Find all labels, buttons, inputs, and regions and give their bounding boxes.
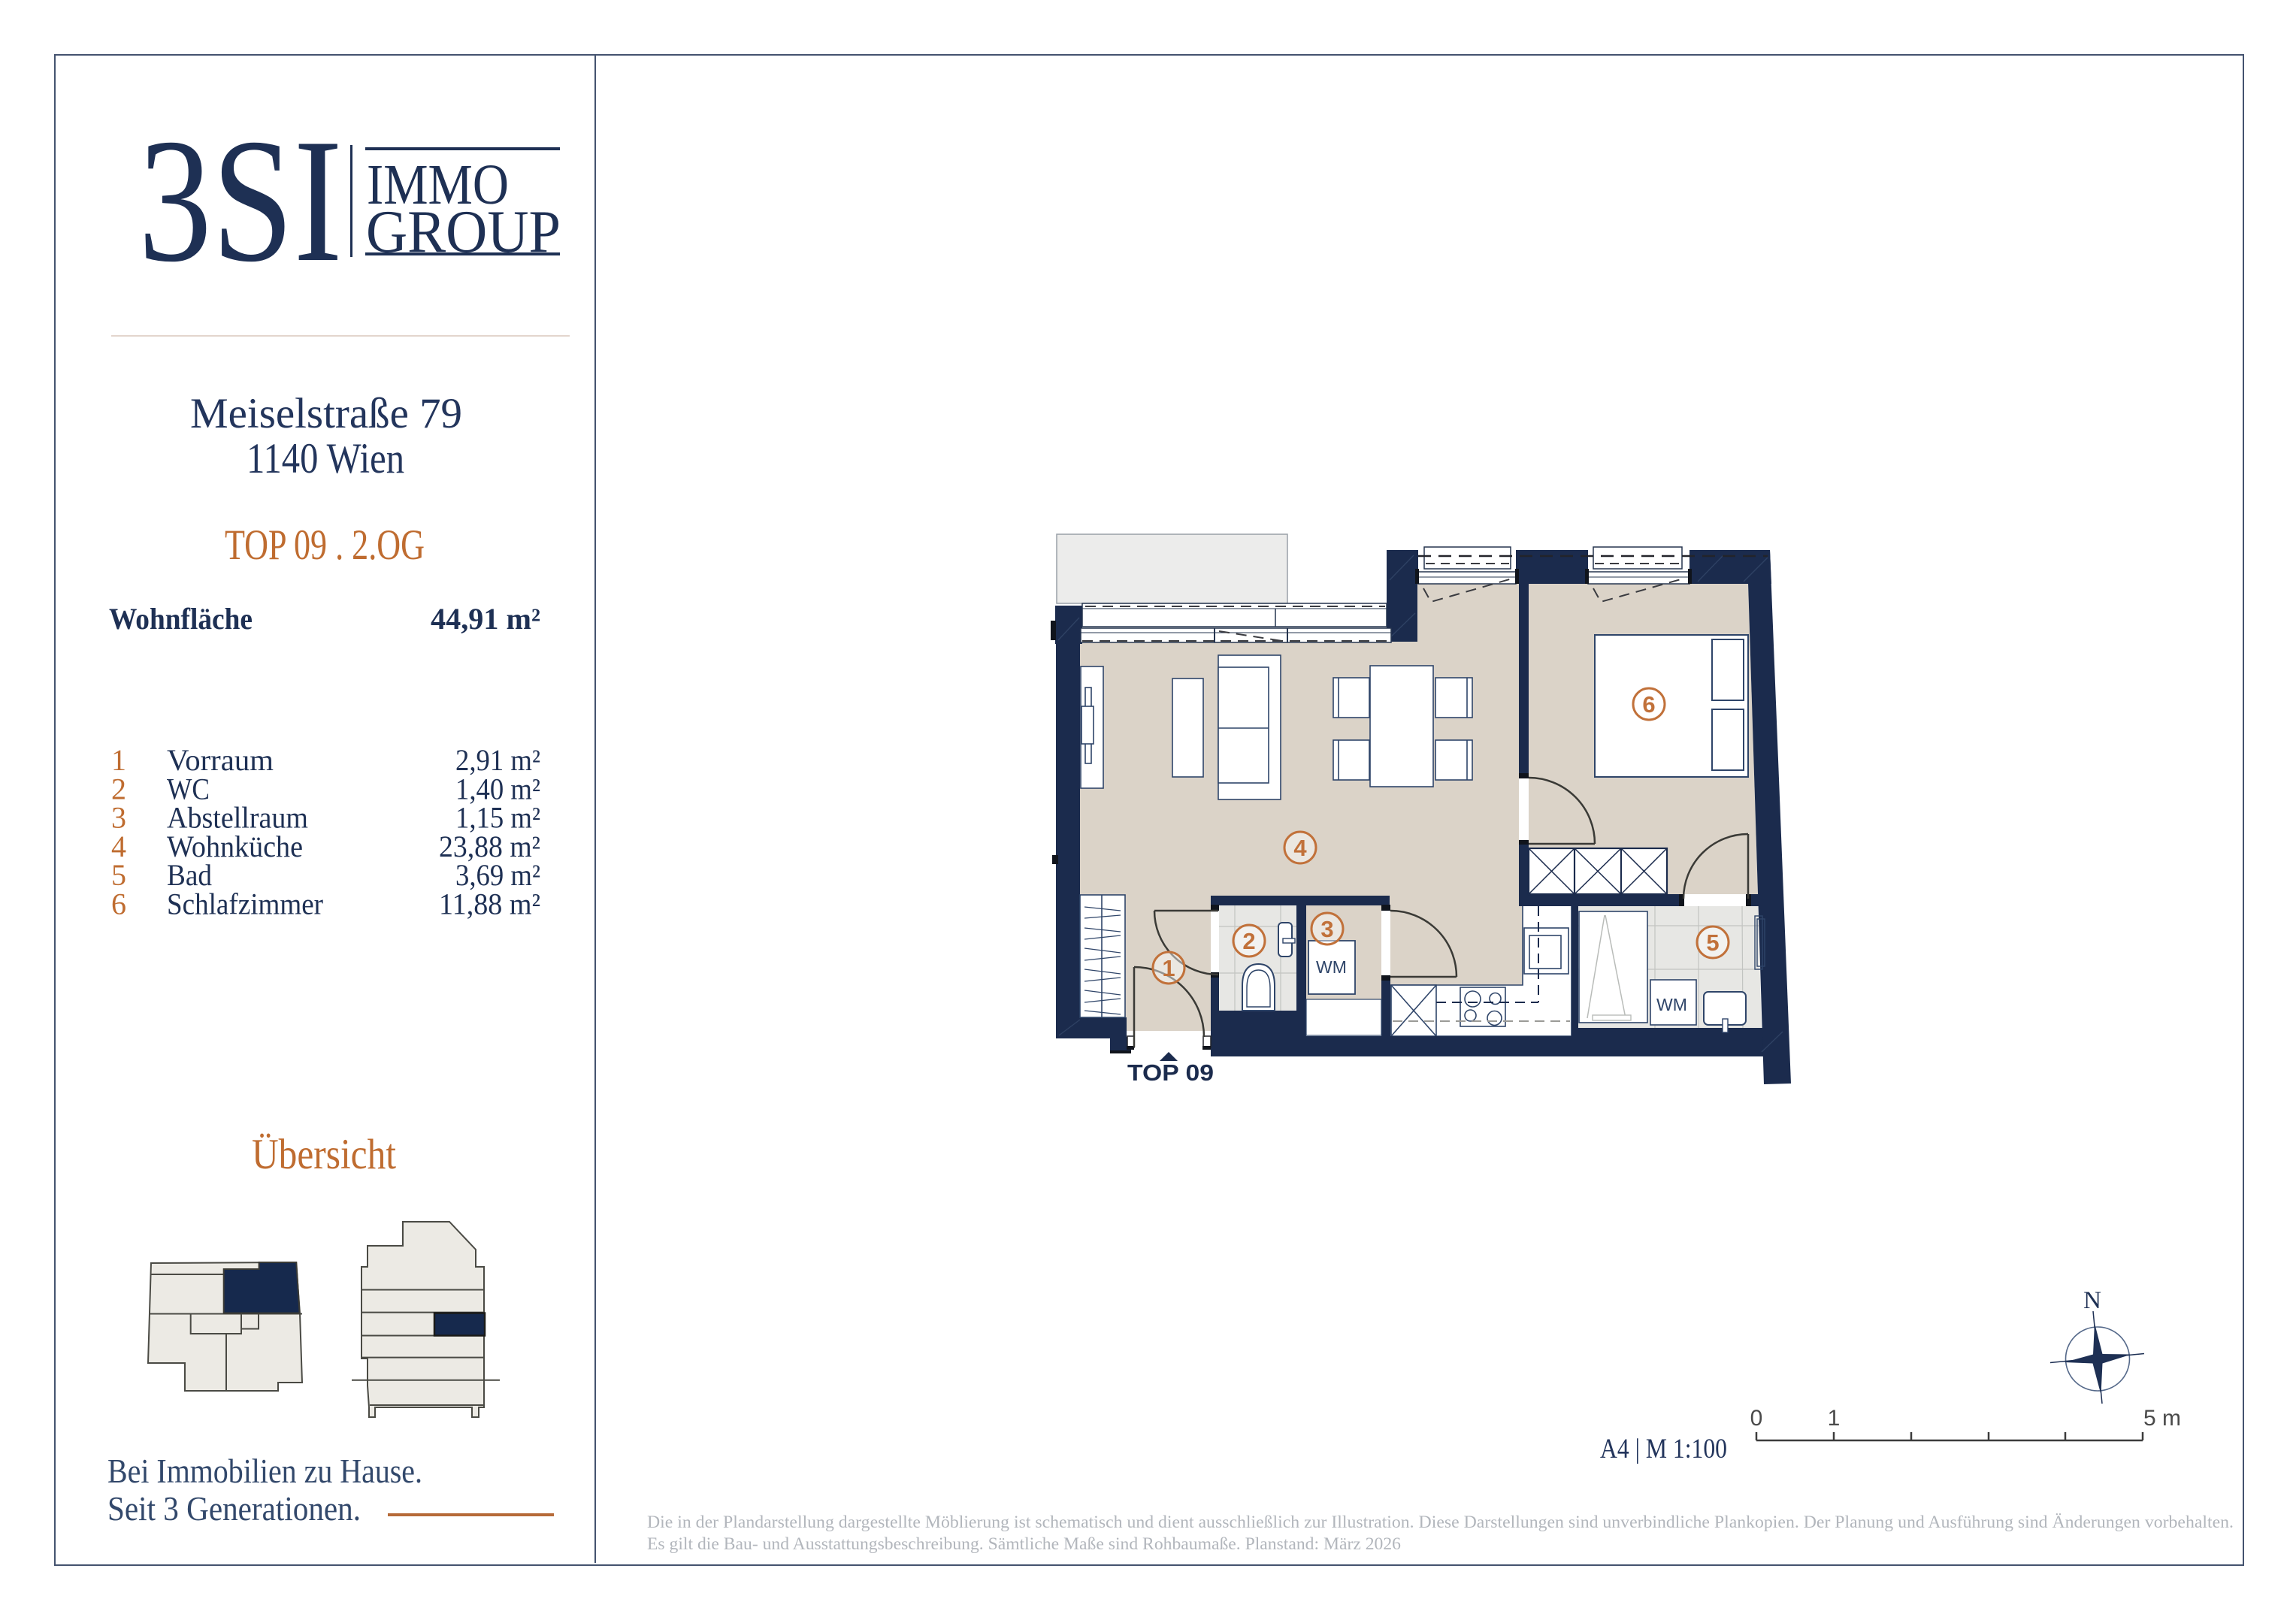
svg-text:A4 | M 1:100: A4 | M 1:100 (1600, 1434, 1727, 1464)
svg-text:5 m: 5 m (2143, 1406, 2181, 1431)
svg-text:TOP 09: TOP 09 (1127, 1059, 1214, 1086)
svg-text:Die in der Plandarstellung dar: Die in der Plandarstellung dargestellte … (647, 1513, 2234, 1531)
svg-text:1: 1 (1828, 1406, 1841, 1431)
svg-text:WM: WM (1316, 957, 1347, 977)
svg-text:0: 0 (1750, 1406, 1763, 1431)
svg-text:3: 3 (1320, 916, 1333, 942)
svg-text:2: 2 (1242, 928, 1255, 954)
svg-text:5: 5 (1706, 929, 1719, 956)
svg-text:Es gilt die Bau- und Ausstattu: Es gilt die Bau- und Ausstattungsbeschre… (647, 1534, 1401, 1553)
svg-text:4: 4 (1293, 835, 1307, 861)
svg-text:6: 6 (1642, 691, 1655, 718)
svg-text:WM: WM (1656, 995, 1687, 1014)
svg-text:N: N (2083, 1287, 2101, 1314)
svg-text:1: 1 (1162, 955, 1175, 981)
